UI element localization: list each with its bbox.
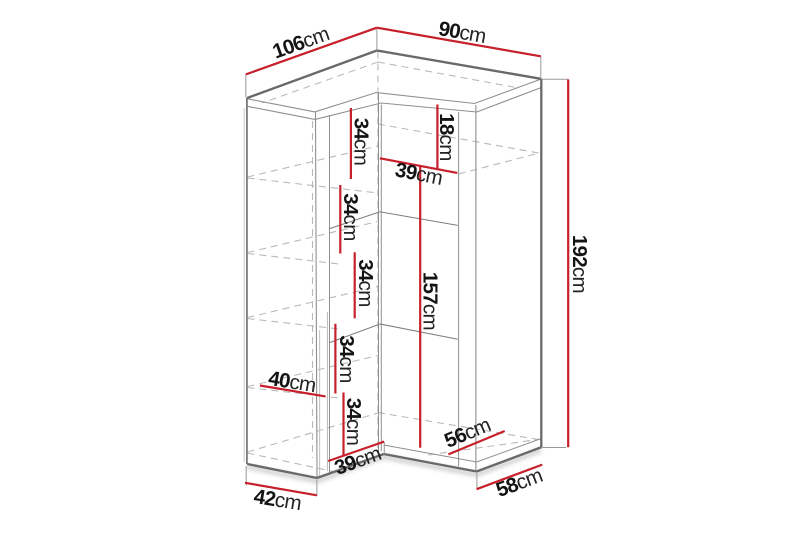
svg-text:106cm: 106cm [270,22,333,63]
svg-text:34cm: 34cm [342,398,365,446]
svg-text:34cm: 34cm [350,118,373,166]
svg-text:192cm: 192cm [568,235,591,293]
svg-text:58cm: 58cm [493,464,546,502]
svg-text:157cm: 157cm [419,272,442,330]
svg-text:42cm: 42cm [252,485,303,515]
svg-text:34cm: 34cm [354,259,377,307]
svg-text:39cm: 39cm [331,442,384,480]
svg-text:18cm: 18cm [435,113,458,161]
svg-text:34cm: 34cm [335,335,358,383]
svg-text:34cm: 34cm [339,193,362,241]
svg-text:90cm: 90cm [437,17,488,48]
